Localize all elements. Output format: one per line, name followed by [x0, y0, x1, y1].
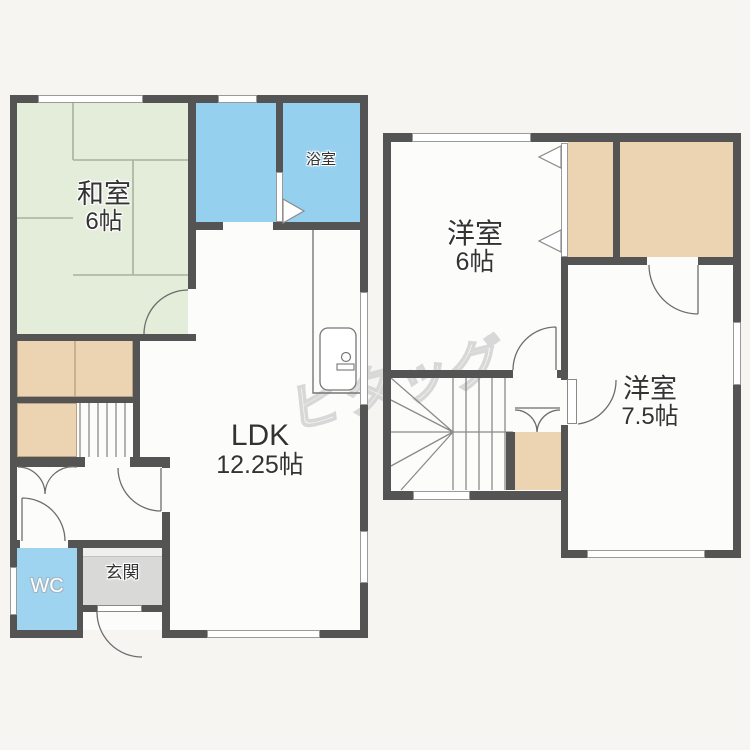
room75-name: 洋室: [580, 375, 720, 404]
room6-name: 洋室: [405, 219, 545, 249]
entrance-door-arc: [97, 612, 142, 657]
hall-closet-double-doors: [18, 467, 77, 494]
kitchen-sink: [320, 328, 356, 390]
bath-label: 浴室: [283, 152, 359, 168]
closet2f2-door-arc: [649, 265, 698, 314]
room6-size: 6帖: [405, 249, 545, 276]
room75-size: 7.5帖: [580, 404, 720, 430]
wc-label: WC: [17, 576, 77, 598]
room6-door-arc: [513, 327, 556, 370]
wc-name: WC: [17, 576, 77, 598]
hall-ldk-door-arc: [118, 468, 161, 511]
faucet-icon: [342, 353, 351, 362]
floorplan-page: { "colors":{ "bg":"#f6f5f2","wall":"#545…: [0, 0, 750, 750]
room75-label: 洋室 7.5帖: [580, 375, 720, 430]
bath-name: 浴室: [283, 152, 359, 168]
ldk-label: LDK 12.25帖: [185, 420, 335, 479]
washitsu-label: 和室 6帖: [46, 180, 162, 235]
room6-label: 洋室 6帖: [405, 219, 545, 276]
wc-door-arc: [22, 498, 65, 541]
washitsu-name: 和室: [46, 180, 162, 209]
bath-door-triangle: [283, 199, 304, 223]
genkan-label: 玄関: [83, 564, 162, 582]
stair-closet-double-doors: [515, 408, 560, 432]
washitsu-door-arc: [144, 290, 188, 334]
washitsu-size: 6帖: [46, 209, 162, 235]
ldk-size: 12.25帖: [185, 452, 335, 479]
ldk-name: LDK: [185, 420, 335, 452]
genkan-name: 玄関: [83, 564, 162, 582]
closet1-door-triangle-top: [539, 146, 561, 168]
